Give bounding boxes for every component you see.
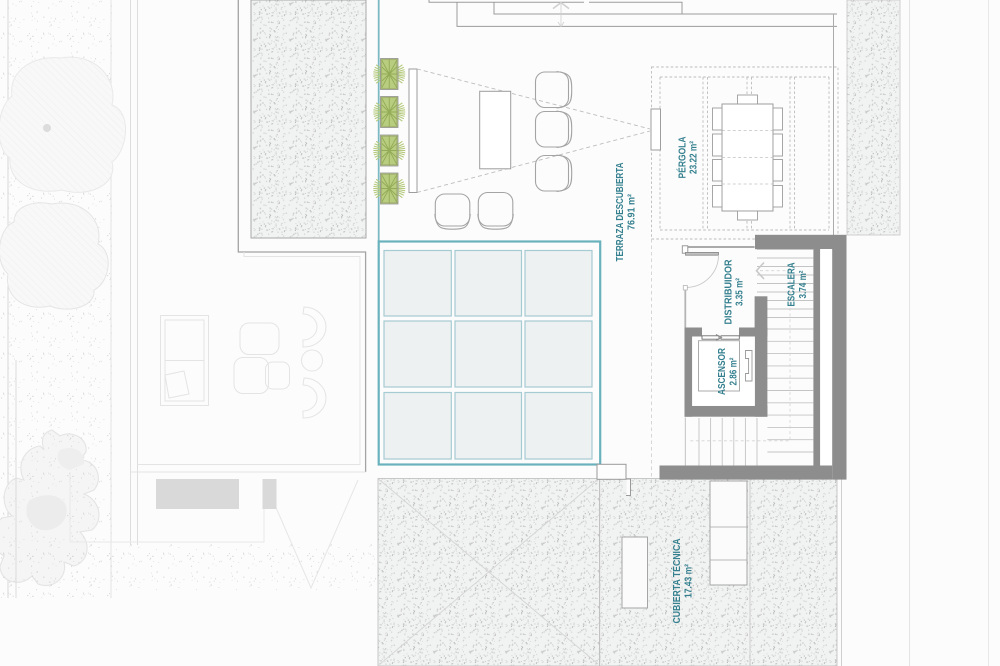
svg-text:ASCENSOR: ASCENSOR: [717, 347, 728, 395]
svg-text:3.35 m²: 3.35 m²: [735, 277, 746, 306]
svg-text:CUBIERTA TÉCNICA: CUBIERTA TÉCNICA: [670, 539, 683, 624]
svg-text:2.86 m²: 2.86 m²: [729, 357, 740, 386]
svg-text:23.22 m²: 23.22 m²: [689, 140, 700, 174]
svg-text:PÉRGOLA: PÉRGOLA: [676, 137, 689, 179]
svg-text:DISTRIBUIDOR: DISTRIBUIDOR: [724, 259, 735, 325]
svg-text:ESCALERA: ESCALERA: [787, 263, 798, 307]
svg-text:3.74 m²: 3.74 m²: [798, 270, 809, 299]
svg-text:17.43 m²: 17.43 m²: [684, 563, 695, 598]
svg-text:76.91 m²: 76.91 m²: [627, 193, 638, 230]
svg-text:TERRAZA DESCUBIERTA: TERRAZA DESCUBIERTA: [615, 163, 626, 262]
